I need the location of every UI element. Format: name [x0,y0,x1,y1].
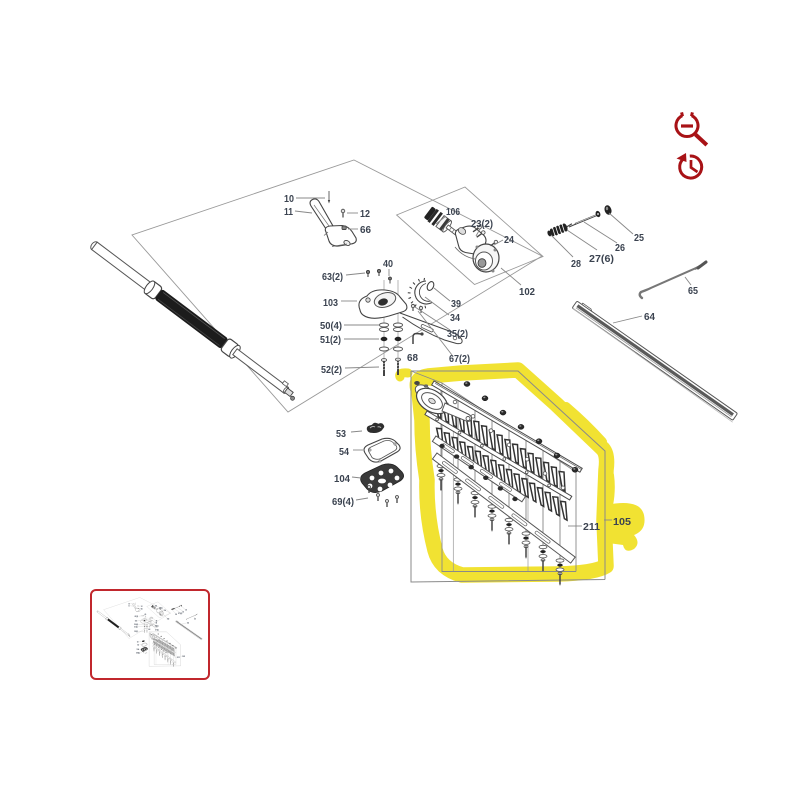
svg-text:65: 65 [688,285,698,297]
svg-text:64: 64 [644,311,655,323]
svg-text:10: 10 [284,193,294,205]
svg-text:26: 26 [615,242,625,254]
svg-text:211: 211 [583,521,600,533]
svg-text:28: 28 [571,258,581,270]
svg-text:102: 102 [519,286,535,298]
svg-text:53: 53 [336,428,346,440]
svg-text:23(2): 23(2) [471,218,493,230]
svg-text:69(4): 69(4) [332,496,354,508]
svg-text:12: 12 [360,208,370,220]
svg-text:68: 68 [407,352,418,364]
svg-text:103: 103 [323,297,338,309]
svg-text:24: 24 [504,234,514,246]
svg-text:63(2): 63(2) [322,271,343,283]
svg-text:105: 105 [613,516,631,528]
svg-text:35(2): 35(2) [447,328,468,340]
svg-text:66: 66 [360,224,371,236]
svg-text:52(2): 52(2) [321,364,342,376]
svg-text:27(6): 27(6) [589,253,614,265]
svg-text:39: 39 [451,298,461,310]
svg-text:34: 34 [450,312,460,324]
svg-text:104: 104 [334,473,350,485]
svg-text:106: 106 [446,206,460,218]
svg-text:40: 40 [383,258,393,270]
svg-text:54: 54 [339,446,349,458]
svg-text:50(4): 50(4) [320,320,342,332]
svg-text:51(2): 51(2) [320,334,341,346]
svg-text:11: 11 [284,206,293,218]
svg-text:25: 25 [634,232,644,244]
